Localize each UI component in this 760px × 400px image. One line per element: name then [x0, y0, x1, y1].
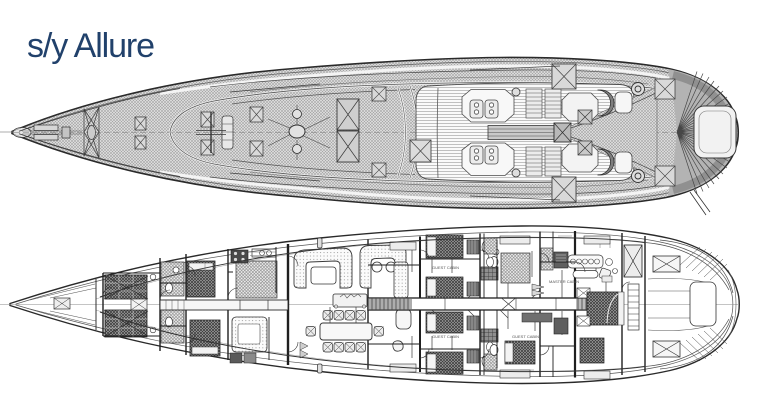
svg-text:MASTER CABIN: MASTER CABIN [549, 279, 579, 284]
svg-text:s/y Allure: s/y Allure [27, 27, 154, 65]
svg-text:GUEST CABIN: GUEST CABIN [512, 334, 539, 339]
svg-text:GUEST CABIN: GUEST CABIN [432, 265, 459, 270]
svg-text:GUEST CABIN: GUEST CABIN [432, 334, 459, 339]
